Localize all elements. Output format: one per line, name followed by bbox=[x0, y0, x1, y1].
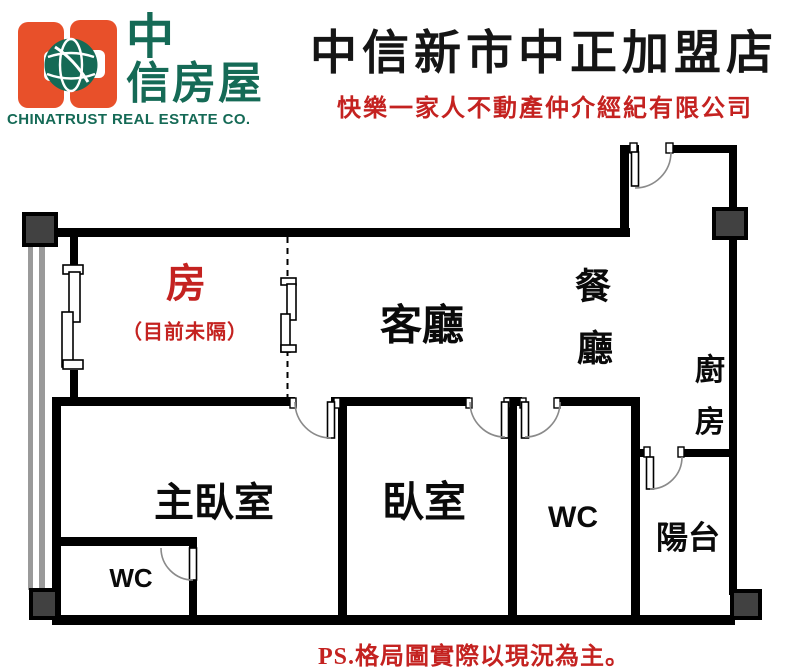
wall-segment bbox=[331, 397, 470, 406]
wc-door bbox=[520, 398, 560, 438]
room-label-bedroom: 臥室 bbox=[382, 480, 466, 527]
room-label-living: 客廳 bbox=[380, 303, 464, 350]
room-label-wc: WC bbox=[548, 501, 598, 534]
column bbox=[732, 591, 760, 618]
room-label-kitchen-1: 廚 bbox=[695, 353, 725, 387]
wall-segment bbox=[338, 397, 347, 625]
room-label-master-wc: WC bbox=[109, 563, 153, 593]
store-subtitle: 快樂一家人不動產仲介經紀有限公司 bbox=[330, 88, 760, 123]
wall-segment bbox=[189, 580, 197, 625]
window-symbol-left bbox=[62, 265, 83, 369]
balcony-door bbox=[644, 447, 684, 489]
wall-segment bbox=[70, 370, 78, 398]
wall-segment bbox=[631, 397, 640, 625]
columns bbox=[24, 209, 760, 618]
logo-company-name-line1: 中 bbox=[126, 14, 174, 62]
logo-company-name-en: CHINATRUST REAL ESTATE CO. bbox=[7, 111, 269, 128]
walls bbox=[52, 145, 737, 625]
room-label-dining-2: 廳 bbox=[577, 327, 613, 368]
wall-segment bbox=[620, 145, 629, 237]
wall-segment bbox=[508, 397, 517, 625]
dashed-partition bbox=[281, 237, 296, 397]
company-logo: 中 信房屋 CHINATRUST REAL ESTATE CO. bbox=[8, 6, 270, 138]
wall-segment bbox=[555, 397, 640, 406]
wall-segment bbox=[668, 145, 737, 153]
column bbox=[714, 209, 746, 238]
room-label-master-bedroom: 主臥室 bbox=[154, 480, 274, 525]
master-bedroom-door bbox=[290, 398, 340, 438]
entrance-door bbox=[630, 143, 673, 188]
logo-company-name-line2: 信房屋 bbox=[126, 62, 264, 106]
room-label-flex: 房 bbox=[166, 261, 206, 306]
room-label-kitchen-2: 房 bbox=[695, 406, 725, 439]
room-label-dining-1: 餐 bbox=[575, 266, 611, 306]
wall-segment bbox=[70, 237, 78, 267]
left-window-band bbox=[28, 245, 45, 590]
store-title: 中信新市中正加盟店 bbox=[288, 14, 800, 83]
wall-segment bbox=[52, 397, 295, 406]
wall-segment bbox=[682, 449, 729, 457]
column bbox=[24, 214, 56, 245]
room-note-flex: （目前未隔） bbox=[122, 320, 248, 344]
room-label-balcony: 陽台 bbox=[656, 519, 720, 555]
disclaimer-note: PS.格局圖實際以現況為主。 bbox=[318, 636, 630, 671]
wall-segment bbox=[55, 228, 630, 237]
bedroom-door bbox=[466, 398, 510, 438]
column bbox=[31, 590, 57, 618]
header: 中 信房屋 CHINATRUST REAL ESTATE CO. 中信新市中正加… bbox=[0, 0, 800, 140]
floor-plan: 房 （目前未隔） 客廳 餐 廳 廚 房 主臥室 臥室 WC 陽台 WC bbox=[0, 140, 800, 670]
master-wc-door bbox=[161, 548, 197, 580]
globe-icon bbox=[45, 39, 98, 92]
wall-segment bbox=[60, 537, 197, 546]
